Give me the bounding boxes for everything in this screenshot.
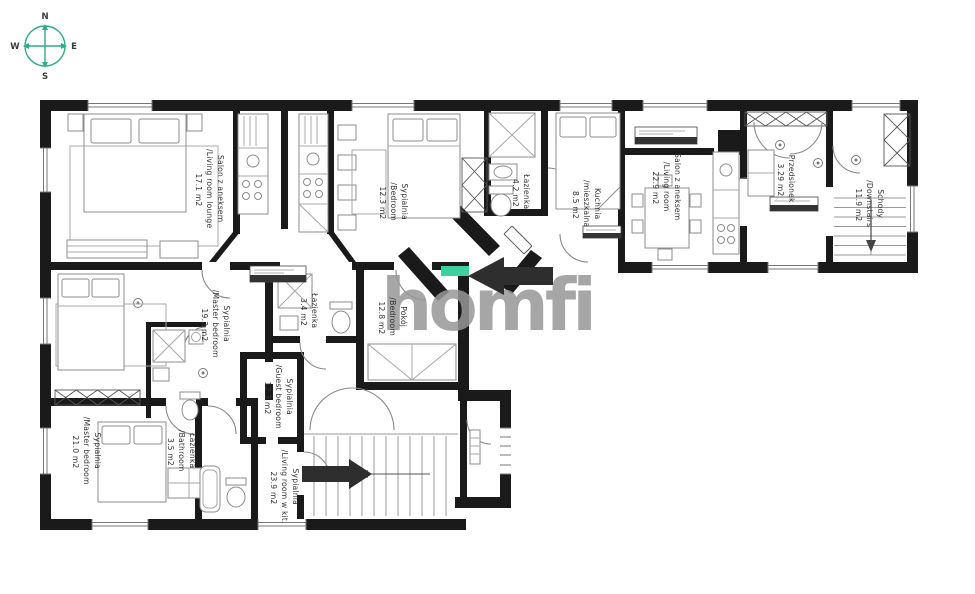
room-name-en: /Bedroom — [388, 297, 397, 336]
room-name-en: /mieszkalna — [582, 180, 591, 227]
room-name-en: /Living room — [662, 162, 671, 212]
furniture-side-room — [470, 430, 480, 464]
room-area: 3.29 m2 — [776, 164, 785, 197]
room-name-pl: Salon z aneksem — [216, 155, 225, 222]
compass-s-label: S — [42, 72, 48, 82]
room-name-pl: Przedsionek — [787, 155, 796, 203]
room-area: 4.2 m2 — [511, 179, 520, 207]
compass-rose-icon: N E S W — [10, 12, 77, 82]
room-area: 3.4 m2 — [299, 298, 308, 326]
room-area: 11.9 m2 — [854, 189, 863, 222]
room-name-en: /Living room w kit. — [280, 450, 289, 524]
furniture-vestibule — [748, 150, 774, 196]
room-area: 12.3 m2 — [263, 382, 272, 415]
room-area: 12.8 m2 — [377, 302, 386, 335]
room-name-pl: Pokój — [399, 306, 408, 327]
room-area: 21.0 m2 — [71, 436, 80, 469]
room-label-living-3: Sypialnia /Living room w kit. 23.9 m2 — [269, 450, 300, 527]
room-name-pl: Schody — [876, 189, 885, 218]
furniture-bedroom-1 — [338, 114, 460, 230]
furniture-bathroom-3 — [200, 466, 246, 512]
room-label-stairs: Schody /Downstairs 11.9 m2 — [854, 180, 885, 230]
room-name-en: /Bedroom — [389, 182, 398, 221]
furniture-living-2 — [632, 152, 739, 260]
room-area: 8.5 m2 — [571, 191, 580, 219]
floor-plan-page: N E S W — [0, 0, 975, 594]
compass-e-label: E — [71, 42, 77, 52]
room-name-en: /Bathroom — [177, 430, 186, 472]
furniture-bedroom-2-wardrobe — [368, 344, 456, 380]
room-name-pl: Sypialnia — [93, 432, 102, 468]
room-name-pl: Sypialnia — [285, 378, 294, 414]
room-name-pl: Salon z aneksem — [673, 153, 682, 220]
room-area: 3.5 m2 — [166, 438, 175, 466]
room-area: 23.9 m2 — [269, 472, 278, 505]
room-name-pl: Łazienka — [522, 173, 531, 209]
floor-plan-drawing: N E S W — [0, 0, 975, 594]
room-name-en: /Master bedroom — [82, 417, 91, 485]
room-name-pl: Sypialnia — [400, 183, 409, 219]
room-name-pl: Kuchnia — [593, 188, 602, 219]
room-name-pl: Łazienka — [188, 432, 197, 468]
logo-green-accent — [441, 266, 469, 276]
room-area: 17.1 m2 — [194, 174, 203, 207]
room-name-en: /Guest bedroom — [274, 365, 283, 429]
room-label-bedroom-1: Sypialnia /Bedroom 12.3 m2 — [378, 182, 409, 223]
compass-w-label: W — [10, 42, 20, 52]
room-name-pl: Sypialnia — [291, 468, 300, 504]
room-label-bedroom-4: Sypialnia /Guest bedroom 12.3 m2 — [263, 365, 294, 432]
room-label-bathroom-3: Łazienka /Bathroom 3.5 m2 — [166, 430, 197, 474]
room-name-en: /Downstairs — [865, 180, 874, 227]
room-name-en: /Master bedroom — [211, 290, 220, 358]
compass-n-label: N — [41, 12, 48, 22]
room-label-living-1: Salon z aneksem /Living room lounge 17.1… — [194, 149, 225, 231]
room-label-master-bedroom: Sypialnia /Master bedroom 19.2 m2 — [200, 290, 231, 361]
room-label-bathroom-1: Łazienka 4.2 m2 — [511, 173, 531, 212]
room-area: 22.9 m2 — [651, 172, 660, 205]
room-area: 19.2 m2 — [200, 309, 209, 342]
room-name-pl: Sypialnia — [222, 305, 231, 341]
room-name-pl: Łazienka — [310, 292, 319, 328]
room-area: 12.3 m2 — [378, 187, 387, 220]
room-label-bedroom-3: Sypialnia /Master bedroom 21.0 m2 — [71, 417, 102, 488]
room-name-en: /Living room lounge — [205, 149, 214, 228]
